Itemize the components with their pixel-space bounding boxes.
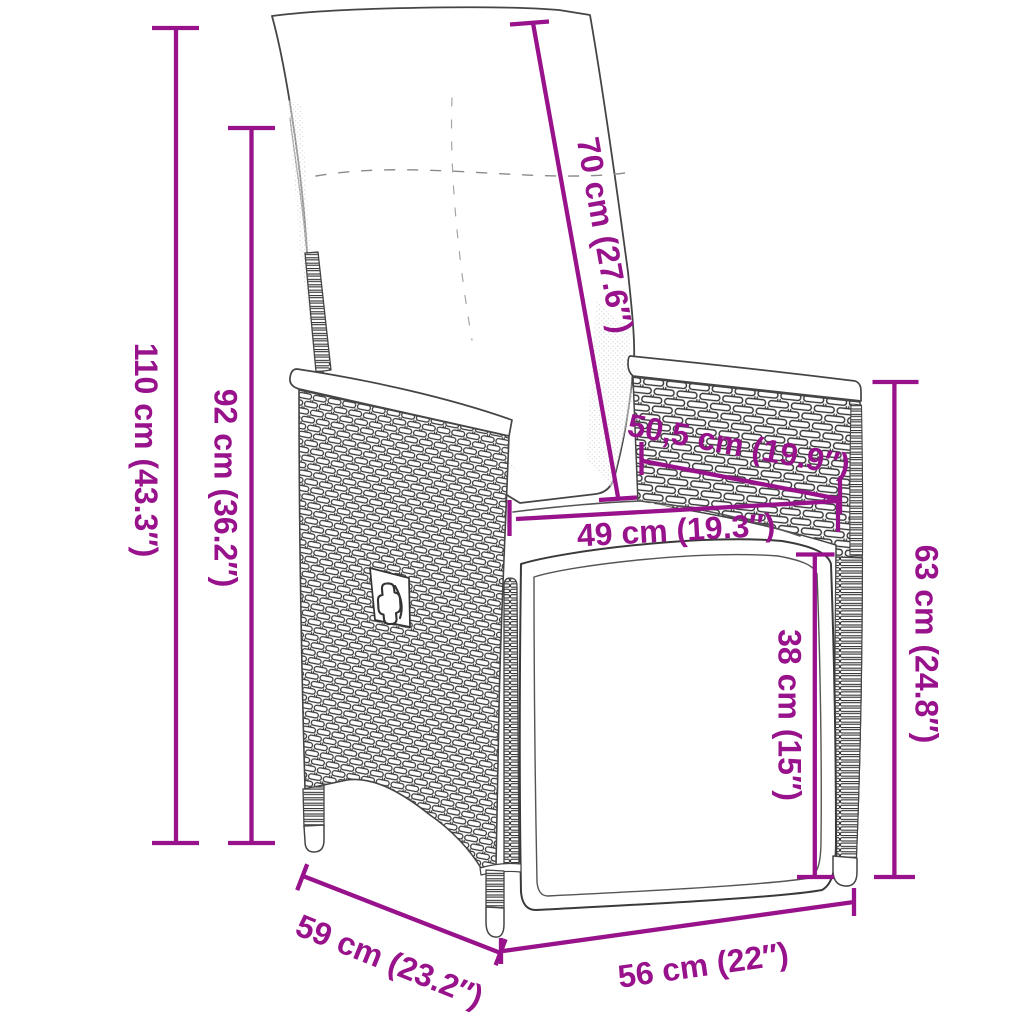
svg-text:110 cm (43.3″): 110 cm (43.3″) [128,343,164,558]
svg-text:38 cm (15″): 38 cm (15″) [772,629,808,801]
svg-text:92 cm (36.2″): 92 cm (36.2″) [208,389,244,588]
svg-text:63 cm (24.8″): 63 cm (24.8″) [909,545,945,744]
